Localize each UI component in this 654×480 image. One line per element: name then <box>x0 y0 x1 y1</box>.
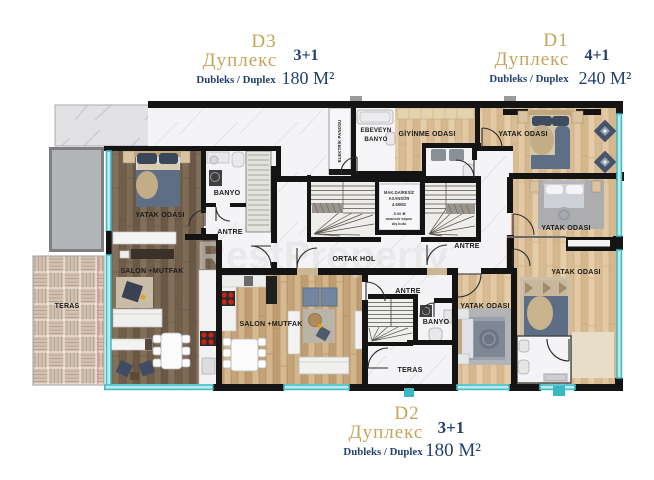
svg-text:D2: D2 <box>394 403 419 424</box>
svg-text:BANYO: BANYO <box>214 189 241 197</box>
svg-text:EBEVEYN: EBEVEYN <box>361 127 392 134</box>
svg-text:YATAK ODASI: YATAK ODASI <box>551 268 600 276</box>
svg-text:asansör kapısı: asansör kapısı <box>386 217 412 221</box>
svg-text:ELEKTRİK PANOSU: ELEKTRİK PANOSU <box>337 120 342 163</box>
svg-text:YATAK ODASI: YATAK ODASI <box>135 211 184 219</box>
svg-text:Dubleks / Duplex: Dubleks / Duplex <box>343 446 423 458</box>
svg-text:BANYO: BANYO <box>364 136 387 143</box>
svg-text:YATAK ODASI: YATAK ODASI <box>460 302 509 310</box>
svg-text:Дуплекс: Дуплекс <box>349 422 424 443</box>
svg-text:180 M²: 180 M² <box>282 68 335 88</box>
svg-text:BANYO: BANYO <box>423 318 450 326</box>
svg-text:TERAS: TERAS <box>397 366 422 374</box>
svg-text:ORTAK HOL: ORTAK HOL <box>333 256 376 263</box>
svg-text:4.60M2: 4.60M2 <box>392 202 407 207</box>
svg-text:D1: D1 <box>543 30 568 51</box>
svg-text:3+1: 3+1 <box>293 47 318 64</box>
svg-text:Dubleks / Duplex: Dubleks / Duplex <box>489 73 569 85</box>
svg-text:D3: D3 <box>251 31 276 52</box>
svg-text:ANTRE: ANTRE <box>217 228 243 236</box>
svg-text:4+1: 4+1 <box>584 47 609 64</box>
svg-text:ASANSÖR: ASANSÖR <box>389 196 410 201</box>
svg-text:SALON +MUTFAK: SALON +MUTFAK <box>120 267 184 275</box>
svg-text:-5.00 ⊕: -5.00 ⊕ <box>393 212 407 216</box>
svg-text:dış kutu: dış kutu <box>392 222 407 226</box>
svg-text:Дуплекс: Дуплекс <box>203 50 278 71</box>
svg-text:ANTRE: ANTRE <box>454 242 480 250</box>
svg-text:TERAS: TERAS <box>55 303 80 310</box>
svg-text:GİYİNME ODASI: GİYİNME ODASI <box>399 129 456 138</box>
svg-text:Dubleks / Duplex: Dubleks / Duplex <box>196 74 276 86</box>
svg-text:ANTRE: ANTRE <box>395 287 421 295</box>
svg-text:180 M²: 180 M² <box>425 440 481 461</box>
svg-text:Дуплекс: Дуплекс <box>495 49 570 70</box>
svg-text:3+1: 3+1 <box>438 418 465 437</box>
svg-text:SALON +MUTFAK: SALON +MUTFAK <box>239 320 303 328</box>
svg-text:240 M²: 240 M² <box>579 68 632 88</box>
svg-text:MAK.DAİRESİZ: MAK.DAİRESİZ <box>384 190 415 195</box>
svg-text:YATAK ODASI: YATAK ODASI <box>498 130 547 138</box>
svg-text:YATAK ODASI: YATAK ODASI <box>541 224 590 232</box>
